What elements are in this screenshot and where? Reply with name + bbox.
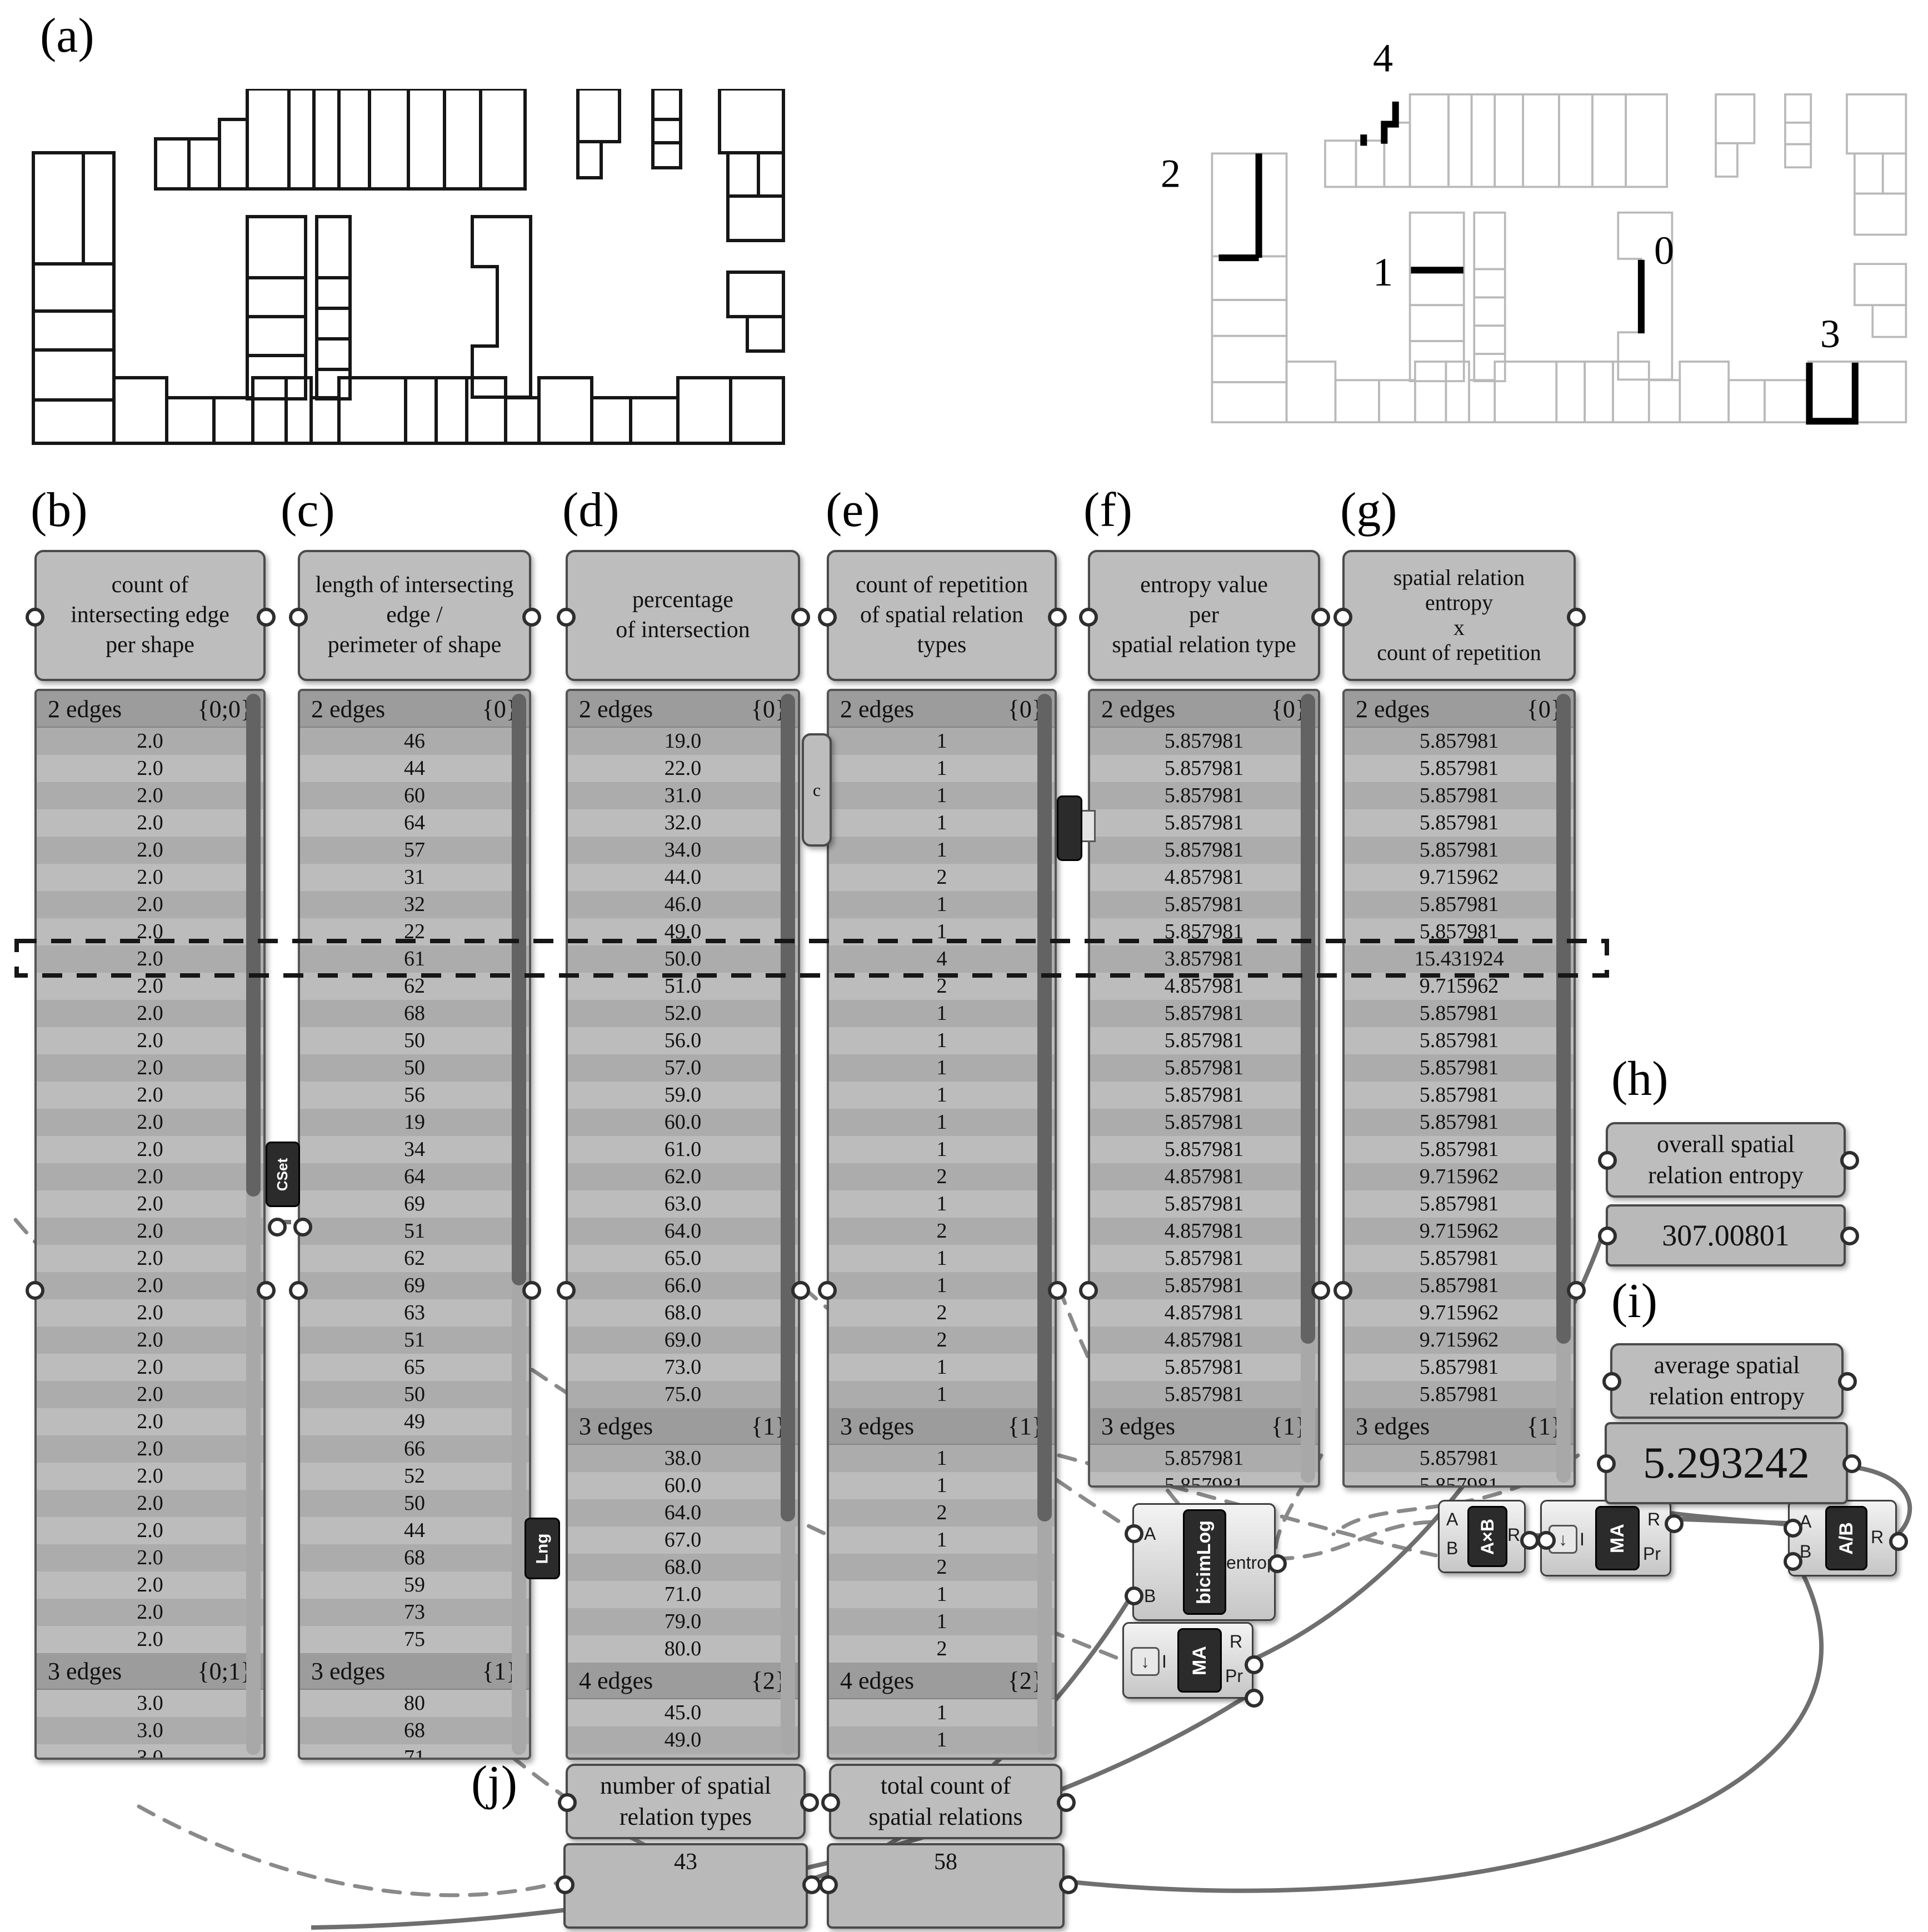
wire-grip[interactable] [257, 608, 276, 627]
data-row: 4.857981 [1090, 973, 1318, 1000]
data-row: 65.0 [568, 1245, 798, 1272]
wire-grip[interactable] [1840, 1227, 1859, 1245]
component-lng[interactable]: Lng [525, 1518, 560, 1579]
data-row: 2.0 [37, 1082, 263, 1109]
data-row: 63 [300, 1299, 529, 1327]
data-row: 46 [300, 728, 529, 755]
data-row: 5.857981 [1090, 755, 1318, 782]
data-row: 5.857981 [1345, 755, 1574, 782]
wire-grip[interactable] [1311, 608, 1330, 627]
wire-grip[interactable] [1567, 1281, 1586, 1300]
group-name: 4 edges [840, 1666, 914, 1695]
edge-label-1: 1 [1373, 250, 1393, 294]
data-row: 44.0 [568, 864, 798, 891]
wire-grip[interactable] [26, 608, 44, 627]
wire-grip[interactable] [1333, 1281, 1352, 1300]
data-row: 5.857981 [1345, 782, 1574, 809]
data-row: 9.715962 [1345, 1218, 1574, 1245]
port-input-I[interactable]: I [1162, 1651, 1167, 1672]
overall-entropy-value-panel[interactable]: 307.00801 [1606, 1204, 1846, 1267]
data-row: 57 [300, 837, 529, 864]
data-row: 5.857981 [1090, 1381, 1318, 1408]
data-row: 2.0 [37, 1245, 263, 1272]
column-d-group-header: 3 edges{1} [568, 1408, 798, 1445]
wire-grip[interactable] [557, 1281, 576, 1300]
data-row: 2.0 [37, 945, 263, 973]
component-cset-label: CSet [274, 1158, 292, 1190]
figure-label-h: (h) [1611, 1051, 1669, 1107]
data-row: 15.431924 [1345, 945, 1574, 973]
data-row: 5.857981 [1345, 1445, 1574, 1472]
data-row: 49 [300, 1408, 529, 1435]
data-row: 62 [300, 1245, 529, 1272]
column-g-group-header: 3 edges{1} [1345, 1408, 1574, 1445]
data-row: 66.0 [568, 1272, 798, 1299]
port-input-I[interactable]: I [1580, 1529, 1585, 1550]
component-cset[interactable]: CSet [266, 1142, 300, 1207]
scrollbar-thumb[interactable] [512, 694, 526, 1285]
figure-label-i: (i) [1611, 1273, 1657, 1329]
column-c-data-panel[interactable]: 2 edges{0}464460645731322261626850505619… [298, 689, 531, 1760]
overall-entropy-title: overall spatial relation entropy [1648, 1129, 1804, 1192]
port-input-A[interactable]: A [1446, 1509, 1458, 1530]
data-row: 1 [829, 1027, 1055, 1054]
wire-grip[interactable] [1598, 1227, 1617, 1245]
data-row: 2.0 [37, 1463, 263, 1490]
wire-grip[interactable] [558, 1793, 577, 1812]
data-row: 2.0 [37, 1027, 263, 1054]
wire-grip[interactable] [821, 1793, 840, 1812]
data-row: 5.857981 [1090, 1109, 1318, 1136]
data-row: 2.0 [37, 1054, 263, 1082]
data-row: 2.0 [37, 837, 263, 864]
data-row: 5.857981 [1345, 1082, 1574, 1109]
data-row: 5.857981 [1345, 891, 1574, 918]
port-output-Pr[interactable]: Pr [1225, 1666, 1243, 1686]
wire-grip[interactable] [1311, 1281, 1330, 1300]
data-row: 5.857981 [1090, 1054, 1318, 1082]
wire-grip[interactable] [522, 608, 541, 627]
data-row: 3.0 [37, 1717, 263, 1744]
data-row: 4 [829, 945, 1055, 973]
data-row: 2.0 [37, 918, 263, 945]
data-row: 2 [829, 1299, 1055, 1327]
wire-grip[interactable] [1268, 1554, 1287, 1573]
wire-grip[interactable] [791, 608, 810, 627]
data-row: 1 [829, 1136, 1055, 1163]
data-row: 5.857981 [1345, 1109, 1574, 1136]
data-row: 5.857981 [1345, 1245, 1574, 1272]
data-row: 2.0 [37, 728, 263, 755]
data-row: 2.0 [37, 1517, 263, 1544]
column-g-group-header: 2 edges{0} [1345, 691, 1574, 728]
data-row: 38.0 [568, 1445, 798, 1472]
wire-grip[interactable] [1567, 608, 1586, 627]
total-relations-capsule[interactable]: total count of spatial relations [829, 1764, 1062, 1839]
data-row: 49.0 [568, 918, 798, 945]
data-row: 9.715962 [1345, 1299, 1574, 1327]
data-row: 69.0 [568, 1327, 798, 1354]
component-axb-label: A×B [1477, 1519, 1498, 1555]
scrollbar-thumb[interactable] [246, 694, 261, 1197]
data-row: 62.0 [568, 1163, 798, 1190]
data-row: 56.0 [568, 1027, 798, 1054]
data-row: 2.0 [37, 1109, 263, 1136]
data-row: 68 [300, 1544, 529, 1571]
wire-grip[interactable] [1838, 1372, 1857, 1391]
wire-grip[interactable] [1842, 1454, 1861, 1473]
data-row: 79.0 [568, 1608, 798, 1635]
data-row: 2.0 [37, 1571, 263, 1599]
component-adb[interactable]: A/BABR [1788, 1500, 1897, 1576]
relation-types-title: number of spatial relation types [600, 1770, 771, 1833]
data-row: 71.0 [568, 1581, 798, 1608]
data-row: 4.857981 [1090, 864, 1318, 891]
data-row: 1 [829, 1526, 1055, 1554]
component-ma2-tag: MA [1177, 1628, 1222, 1693]
column-b-capsule[interactable]: count of intersecting edge per shape [34, 550, 266, 681]
group-path: {0;1} [198, 1657, 252, 1685]
average-entropy-capsule[interactable]: average spatial relation entropy [1610, 1343, 1844, 1419]
column-d-data-panel[interactable]: 2 edges{0}19.022.031.032.034.044.046.049… [566, 689, 800, 1760]
data-row: 1 [829, 1109, 1055, 1136]
port-output-R[interactable]: R [1871, 1527, 1884, 1548]
column-e-title: count of repetition of spatial relation … [856, 570, 1028, 660]
data-row: 1 [829, 918, 1055, 945]
data-row: 2.0 [37, 1000, 263, 1027]
data-row: 3.857981 [1090, 945, 1318, 973]
wire-grip[interactable] [1079, 1281, 1098, 1300]
data-row: 2.0 [37, 891, 263, 918]
wire-grip[interactable] [1840, 1151, 1859, 1170]
data-row: 44 [300, 755, 529, 782]
floor-plan-black [31, 89, 786, 450]
component-lng-label: Lng [533, 1533, 552, 1564]
data-row: 9.715962 [1345, 1327, 1574, 1354]
wire-grip[interactable] [818, 1281, 837, 1300]
data-row: 1 [829, 1699, 1055, 1726]
component-ma1-label: MA [1606, 1524, 1628, 1553]
data-row: 1 [829, 1381, 1055, 1408]
group-name: 3 edges [311, 1657, 385, 1685]
component-cparam[interactable]: c [802, 733, 832, 847]
data-row: 1 [829, 1054, 1055, 1082]
data-row: 1 [829, 1472, 1055, 1499]
data-row: 2 [829, 1635, 1055, 1663]
data-row: 2.0 [37, 809, 263, 837]
data-row: 5.857981 [1345, 1136, 1574, 1163]
scrollbar-thumb[interactable] [1037, 694, 1052, 1521]
relation-types-value: 43 [674, 1849, 697, 1875]
wire-grip[interactable] [1245, 1689, 1263, 1708]
wire-grip[interactable] [557, 608, 576, 627]
component-bicimlog-label: bicimLog [1194, 1520, 1216, 1604]
wire-grip[interactable] [1048, 1281, 1067, 1300]
wire-grip[interactable] [1889, 1532, 1908, 1551]
scrollbar-thumb[interactable] [1301, 694, 1315, 1344]
data-row: 31 [300, 864, 529, 891]
data-row: 2 [829, 864, 1055, 891]
data-row: 65 [300, 1354, 529, 1381]
data-row: 4.857981 [1090, 1327, 1318, 1354]
data-row: 2.0 [37, 1544, 263, 1571]
data-row: 4.857981 [1090, 1299, 1318, 1327]
total-relations-value: 58 [934, 1849, 957, 1875]
wire-grip[interactable] [522, 1281, 541, 1300]
port-output-R[interactable]: R [1647, 1509, 1660, 1530]
data-row: 5.857981 [1345, 918, 1574, 945]
data-row: 51 [300, 1327, 529, 1354]
data-row: 61.0 [568, 1136, 798, 1163]
wire-grip[interactable] [818, 608, 837, 627]
data-row: 1 [829, 1000, 1055, 1027]
wire-grip[interactable] [556, 1875, 575, 1894]
data-row: 5.857981 [1090, 1472, 1318, 1488]
wire-grip[interactable] [289, 1281, 308, 1300]
data-row: 51 [300, 1218, 529, 1245]
data-row: 34 [300, 1136, 529, 1163]
data-row: 64.0 [568, 1218, 798, 1245]
download-arrow-icon: ↓ [1131, 1647, 1160, 1676]
edge-label-4: 4 [1373, 36, 1393, 80]
data-row: 2 [829, 1499, 1055, 1526]
column-g-capsule[interactable]: spatial relation entropy x count of repe… [1342, 550, 1576, 681]
wire-grip[interactable] [1537, 1531, 1556, 1550]
average-entropy-value-panel[interactable]: 5.293242 [1605, 1422, 1848, 1504]
data-row: 5.857981 [1345, 1381, 1574, 1408]
column-e-capsule[interactable]: count of repetition of spatial relation … [827, 550, 1057, 681]
data-row: 50 [300, 1490, 529, 1517]
column-e-group-header: 4 edges{2} [829, 1663, 1055, 1699]
wire-grip[interactable] [1048, 608, 1067, 627]
data-row: 5.857981 [1090, 1354, 1318, 1381]
data-row: 60.0 [568, 1472, 798, 1499]
column-c-group-header: 2 edges{0} [300, 691, 529, 728]
data-row: 5.857981 [1090, 1136, 1318, 1163]
component-axb[interactable]: A×BABR [1438, 1500, 1526, 1573]
wire-grip[interactable] [26, 1281, 44, 1300]
port-input-A[interactable]: A [1144, 1524, 1156, 1544]
data-row: 5.857981 [1090, 809, 1318, 837]
component-adb-label: A/B [1836, 1522, 1857, 1555]
data-row: 1 [829, 891, 1055, 918]
wire-grip[interactable] [1059, 1875, 1078, 1894]
data-row: 80 [300, 1690, 529, 1717]
data-row: 75.0 [568, 1381, 798, 1408]
column-f-title: entropy value per spatial relation type [1112, 570, 1296, 660]
column-c-capsule[interactable]: length of intersecting edge / perimeter … [298, 550, 531, 681]
data-row: 49.0 [568, 1726, 798, 1754]
data-row: 31.0 [568, 782, 798, 809]
column-b-title: count of intersecting edge per shape [71, 570, 229, 660]
data-row: 68 [300, 1717, 529, 1744]
data-row: 69 [300, 1272, 529, 1299]
data-row: 44 [300, 1517, 529, 1544]
data-row: 2.0 [37, 1626, 263, 1653]
figure-label-c: (c) [281, 482, 335, 538]
data-row: 64 [300, 1163, 529, 1190]
column-g-data-panel[interactable]: 2 edges{0}5.8579815.8579815.8579815.8579… [1342, 689, 1576, 1488]
data-row: 2.0 [37, 1408, 263, 1435]
wire-grip[interactable] [1597, 1454, 1616, 1473]
column-f-data-panel[interactable]: 2 edges{0}5.8579815.8579815.8579815.8579… [1088, 689, 1320, 1488]
wire-grip[interactable] [1784, 1519, 1802, 1538]
data-row: 5.857981 [1345, 1000, 1574, 1027]
data-row: 1 [829, 809, 1055, 837]
column-d-group-header: 4 edges{2} [568, 1663, 798, 1699]
data-row: 19.0 [568, 728, 798, 755]
overall-entropy-capsule[interactable]: overall spatial relation entropy [1606, 1122, 1846, 1198]
column-f-capsule[interactable]: entropy value per spatial relation type [1088, 550, 1320, 681]
data-row: 5.857981 [1090, 1245, 1318, 1272]
wire-grip[interactable] [800, 1793, 819, 1812]
data-row: 2.0 [37, 1381, 263, 1408]
data-row: 22 [300, 918, 529, 945]
figure-label-j: (j) [471, 1755, 517, 1811]
column-d-capsule[interactable]: percentage of intersection [566, 550, 800, 681]
data-row: 69 [300, 1190, 529, 1218]
total-relations-title: total count of spatial relations [868, 1770, 1022, 1833]
data-row: 2.0 [37, 1599, 263, 1626]
wire-grip[interactable] [293, 1218, 312, 1237]
wire-grip[interactable] [257, 1281, 276, 1300]
figure-label-d: (d) [562, 482, 620, 538]
average-entropy-title: average spatial relation entropy [1649, 1350, 1805, 1413]
scrollbar-thumb[interactable] [781, 694, 795, 1521]
data-row: 62 [300, 973, 529, 1000]
wire-grip[interactable] [819, 1875, 838, 1894]
data-row: 80.0 [568, 1635, 798, 1663]
group-name: 3 edges [48, 1657, 122, 1685]
column-c-group-header: 3 edges{1} [300, 1653, 529, 1690]
scrollbar-thumb[interactable] [1556, 694, 1571, 1344]
data-row: 2.0 [37, 1190, 263, 1218]
data-row: 2.0 [37, 864, 263, 891]
data-row: 1 [829, 1354, 1055, 1381]
data-row: 2 [829, 973, 1055, 1000]
data-row: 50.0 [568, 945, 798, 973]
wire-grip[interactable] [802, 1875, 821, 1894]
data-row: 5.857981 [1345, 1054, 1574, 1082]
group-name: 3 edges [579, 1412, 653, 1440]
port-output-R[interactable]: R [1230, 1631, 1242, 1652]
port-output-R[interactable]: R [1507, 1525, 1520, 1545]
data-row: 5.857981 [1090, 1445, 1318, 1472]
group-name: 2 edges [48, 695, 122, 723]
port-input-B[interactable]: B [1144, 1586, 1156, 1606]
data-row: 1 [829, 728, 1055, 755]
wire-grip[interactable] [1333, 608, 1352, 627]
data-row: 61 [300, 945, 529, 973]
wire-grip[interactable] [791, 1281, 810, 1300]
wire-grip[interactable] [1520, 1531, 1539, 1550]
data-row: 5.857981 [1345, 728, 1574, 755]
data-row: 5.857981 [1090, 1027, 1318, 1054]
column-e-group-header: 2 edges{0} [829, 691, 1055, 728]
data-row: 52.0 [568, 1000, 798, 1027]
relation-types-value-panel[interactable]: 43 [563, 1843, 808, 1929]
data-row: 22.0 [568, 755, 798, 782]
component-ma2[interactable]: MAIRPr↓ [1122, 1622, 1253, 1699]
highlighted-edge-4 [1363, 102, 1395, 146]
total-relations-value-panel[interactable]: 58 [827, 1843, 1065, 1929]
group-name: 3 edges [1101, 1412, 1175, 1440]
data-row: 5.857981 [1090, 918, 1318, 945]
wire-grip[interactable] [1602, 1372, 1621, 1391]
data-row: 50 [300, 1027, 529, 1054]
group-path: {0;0} [198, 695, 252, 723]
component-bicimlog-tag: bicimLog [1183, 1509, 1226, 1615]
data-row: 5.857981 [1090, 1190, 1318, 1218]
data-row: 56 [300, 1082, 529, 1109]
floor-plan-gray-highlighted: 01234 [1153, 19, 1909, 443]
data-row: 2 [829, 1327, 1055, 1354]
wire-grip[interactable] [1079, 608, 1098, 627]
data-row: 5.857981 [1090, 728, 1318, 755]
data-row: 5.857981 [1090, 837, 1318, 864]
wire-grip[interactable] [1665, 1514, 1684, 1533]
port-input-B[interactable]: B [1446, 1538, 1458, 1559]
wire-grip[interactable] [1125, 1524, 1143, 1543]
data-row: 5.857981 [1090, 1000, 1318, 1027]
data-row: 5.857981 [1345, 1027, 1574, 1054]
overall-entropy-value: 307.00801 [1662, 1218, 1790, 1253]
data-row: 3.0 [37, 1690, 263, 1717]
figure-label-f: (f) [1083, 482, 1132, 538]
relation-types-capsule[interactable]: number of spatial relation types [566, 1764, 806, 1839]
data-row: 3.0 [37, 1744, 263, 1760]
data-row: 34.0 [568, 837, 798, 864]
wire-grip[interactable] [1057, 1793, 1076, 1812]
data-row: 5.857981 [1090, 782, 1318, 809]
group-name: 2 edges [840, 695, 914, 723]
group-name: 4 edges [579, 1666, 653, 1695]
group-name: 2 edges [1101, 695, 1175, 723]
data-row: 1 [829, 1581, 1055, 1608]
wire-grip[interactable] [289, 608, 308, 627]
wire-grip[interactable] [1125, 1586, 1143, 1605]
data-row: 75 [300, 1626, 529, 1653]
data-row: 1 [829, 1726, 1055, 1754]
wire-grip[interactable] [268, 1218, 287, 1237]
group-name: 2 edges [1356, 695, 1430, 723]
wire-grip[interactable] [1784, 1552, 1802, 1571]
port-output-Pr[interactable]: Pr [1643, 1544, 1661, 1564]
data-row: 1 [829, 1608, 1055, 1635]
highlighted-edge-2 [1218, 153, 1258, 258]
column-b-data-panel[interactable]: 2 edges{0;0}2.02.02.02.02.02.02.02.02.02… [34, 689, 266, 1760]
component-bicimlog[interactable]: bicimLogABentropy [1132, 1503, 1276, 1621]
data-row: 32.0 [568, 809, 798, 837]
component-adb-tag: A/B [1825, 1506, 1867, 1570]
column-e-data-panel[interactable]: 2 edges{0}11111211421111112121122113 edg… [827, 689, 1057, 1760]
data-row: 2.0 [37, 1218, 263, 1245]
data-row: 64 [300, 809, 529, 837]
component-hidden[interactable] [1057, 795, 1082, 861]
data-row: 2.0 [37, 1327, 263, 1354]
data-row: 9.715962 [1345, 864, 1574, 891]
wire-grip[interactable] [1598, 1151, 1617, 1170]
data-row: 32 [300, 891, 529, 918]
data-row: 60 [300, 782, 529, 809]
data-row: 5.857981 [1345, 1190, 1574, 1218]
data-row: 51.0 [568, 973, 798, 1000]
component-ma1[interactable]: MAIRPr↓ [1540, 1500, 1671, 1576]
figure-label-a: (a) [40, 8, 94, 64]
data-row: 2 [829, 1554, 1055, 1581]
component-cparam-label: c [813, 779, 821, 802]
wire-grip[interactable] [1245, 1655, 1263, 1674]
